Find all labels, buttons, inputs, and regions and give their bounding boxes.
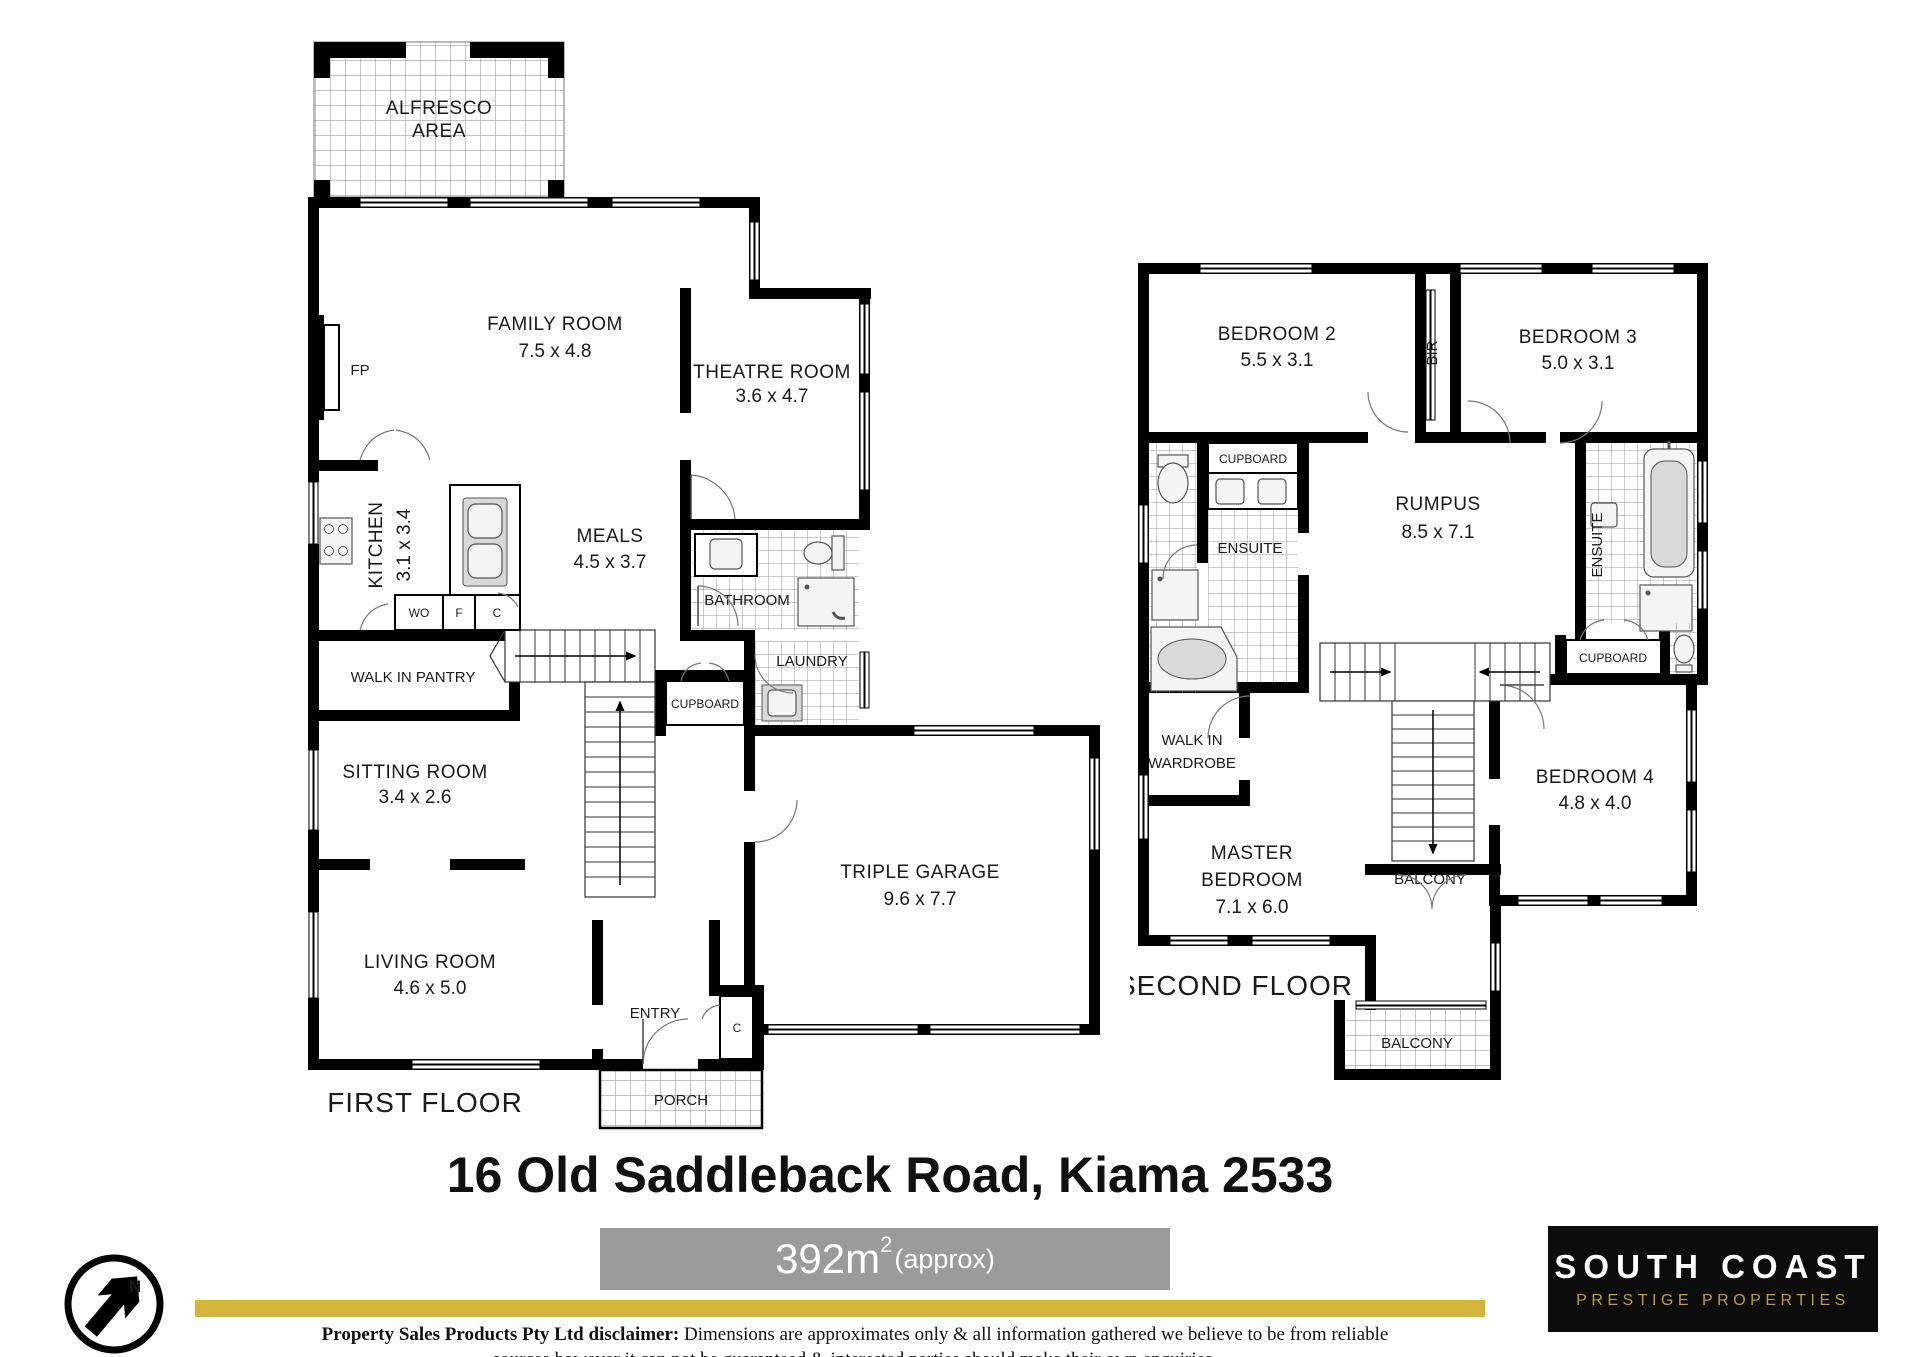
ensuite-left: CUPBOARD ENSUITE bbox=[1149, 443, 1298, 693]
first-floor-walls bbox=[308, 197, 1100, 1070]
north-label: N bbox=[129, 1277, 141, 1296]
pantry-label: WALK IN PANTRY bbox=[351, 669, 476, 686]
alfresco-label: ALFRESCO bbox=[386, 98, 492, 119]
bedroom2-label: BEDROOM 2 bbox=[1218, 324, 1337, 345]
sitting-room-label: SITTING ROOM bbox=[342, 762, 487, 783]
ensuite-right: ENSUITE bbox=[1586, 441, 1697, 631]
ensuite-right-label: ENSUITE bbox=[1589, 512, 1606, 577]
pantry-appliances: WO F C bbox=[360, 593, 520, 630]
garage-dim: 9.6 x 7.7 bbox=[884, 889, 957, 910]
agency-logo-line2: PRESTIGE PROPERTIES bbox=[1576, 1292, 1850, 1310]
cupboard-right-label: CUPBOARD bbox=[1579, 651, 1647, 665]
gold-divider bbox=[195, 1300, 1485, 1317]
kitchen-label: KITCHEN bbox=[366, 502, 387, 589]
wiw-label: WALK IN bbox=[1161, 732, 1222, 749]
first-floor-label: FIRST FLOOR bbox=[327, 1087, 523, 1118]
north-arrow-icon: N bbox=[58, 1248, 170, 1357]
wall-oven-label: WO bbox=[409, 606, 430, 620]
entry-label: ENTRY bbox=[630, 1005, 681, 1022]
porch-label: PORCH bbox=[654, 1092, 708, 1109]
master-dim: 7.1 x 6.0 bbox=[1216, 897, 1289, 918]
master-label2: BEDROOM bbox=[1201, 870, 1303, 891]
toilet-icon bbox=[1674, 635, 1694, 672]
fridge-label: F bbox=[455, 606, 462, 620]
area-approx: (approx) bbox=[894, 1244, 995, 1275]
toilet-icon bbox=[1158, 455, 1188, 503]
cupboard-c-label: C bbox=[493, 606, 502, 620]
area-badge: 392m2(approx) bbox=[600, 1228, 1170, 1290]
laundry: LAUNDRY bbox=[755, 641, 859, 725]
agency-logo: SOUTH COAST PRESTIGE PROPERTIES bbox=[1548, 1226, 1878, 1332]
bedroom4-label: BEDROOM 4 bbox=[1536, 767, 1655, 788]
area-superscript: 2 bbox=[880, 1232, 892, 1258]
balcony-mid-label: BALCONY bbox=[1394, 871, 1466, 888]
cupboard-left-label: CUPBOARD bbox=[1219, 452, 1287, 466]
living-room-dim: 4.6 x 5.0 bbox=[394, 978, 467, 999]
sitting-room-dim: 3.4 x 2.6 bbox=[379, 787, 452, 808]
area-value: 392m bbox=[775, 1235, 880, 1283]
second-floor-plan: CUPBOARD ENSUITE bbox=[1130, 255, 1810, 1135]
wiw-label2: WARDROBE bbox=[1148, 755, 1236, 772]
shower-icon bbox=[798, 578, 854, 626]
laundry-label: LAUNDRY bbox=[776, 653, 847, 670]
porch: PORCH bbox=[600, 1070, 762, 1128]
shower-icon bbox=[1152, 570, 1198, 620]
living-room-label: LIVING ROOM bbox=[364, 952, 496, 973]
second-floor-label: SECOND FLOOR bbox=[1130, 970, 1353, 1001]
fireplace-label: FP bbox=[350, 362, 369, 379]
bathtub-icon bbox=[1644, 441, 1694, 577]
family-room-dim: 7.5 x 4.8 bbox=[519, 341, 592, 362]
balcony-bottom: BALCONY bbox=[1345, 1009, 1490, 1069]
master-label: MASTER bbox=[1211, 843, 1293, 864]
disclaimer-text: Property Sales Products Pty Ltd disclaim… bbox=[180, 1322, 1530, 1357]
bedroom3-label: BEDROOM 3 bbox=[1519, 327, 1638, 348]
meals-label: MEALS bbox=[577, 526, 644, 547]
kitchen-dim: 3.1 x 3.4 bbox=[394, 508, 415, 581]
corner-bath-icon bbox=[1151, 627, 1237, 691]
theatre-room-dim: 3.6 x 4.7 bbox=[736, 386, 809, 407]
staircase-upper bbox=[1320, 643, 1550, 861]
agency-logo-line1: SOUTH COAST bbox=[1554, 1248, 1871, 1286]
entry-closet-label: C bbox=[733, 1021, 742, 1035]
bedroom3-dim: 5.0 x 3.1 bbox=[1542, 353, 1615, 374]
balcony-mid: BALCONY bbox=[1394, 871, 1466, 909]
bathroom: BATHROOM bbox=[691, 530, 859, 630]
bedroom2-dim: 5.5 x 3.1 bbox=[1241, 350, 1314, 371]
kitchen-island bbox=[450, 485, 520, 600]
alfresco-label2: AREA bbox=[412, 121, 466, 142]
ensuite-left-label: ENSUITE bbox=[1217, 540, 1282, 557]
cooktop bbox=[320, 518, 352, 564]
meals-dim: 4.5 x 3.7 bbox=[574, 552, 647, 573]
fireplace: FP bbox=[308, 315, 370, 420]
disclaimer-lead: Property Sales Products Pty Ltd disclaim… bbox=[322, 1324, 680, 1345]
staircase bbox=[490, 630, 655, 897]
entry: ENTRY C bbox=[630, 996, 753, 1064]
bir-label: BIR bbox=[1424, 340, 1441, 365]
balcony-bottom-label: BALCONY bbox=[1381, 1035, 1453, 1052]
bedroom4-dim: 4.8 x 4.0 bbox=[1559, 793, 1632, 814]
cupboard-label: CUPBOARD bbox=[671, 697, 739, 711]
property-address-title: 16 Old Saddleback Road, Kiama 2533 bbox=[340, 1146, 1440, 1204]
disclaimer-line2: sources however it can not be guaranteed… bbox=[180, 1347, 1530, 1357]
alfresco-area: ALFRESCO AREA bbox=[314, 42, 564, 197]
garage-label: TRIPLE GARAGE bbox=[840, 862, 1000, 883]
bathroom-label: BATHROOM bbox=[704, 592, 790, 609]
rumpus-dim: 8.5 x 7.1 bbox=[1402, 522, 1475, 543]
rumpus-label: RUMPUS bbox=[1395, 494, 1480, 515]
floorplan-page: ALFRESCO AREA bbox=[0, 0, 1920, 1357]
first-floor-plan: ALFRESCO AREA bbox=[300, 30, 1110, 1130]
theatre-room-label: THEATRE ROOM bbox=[693, 362, 851, 383]
disclaimer-line1: Dimensions are approximates only & all i… bbox=[679, 1324, 1388, 1345]
family-room-label: FAMILY ROOM bbox=[487, 314, 623, 335]
